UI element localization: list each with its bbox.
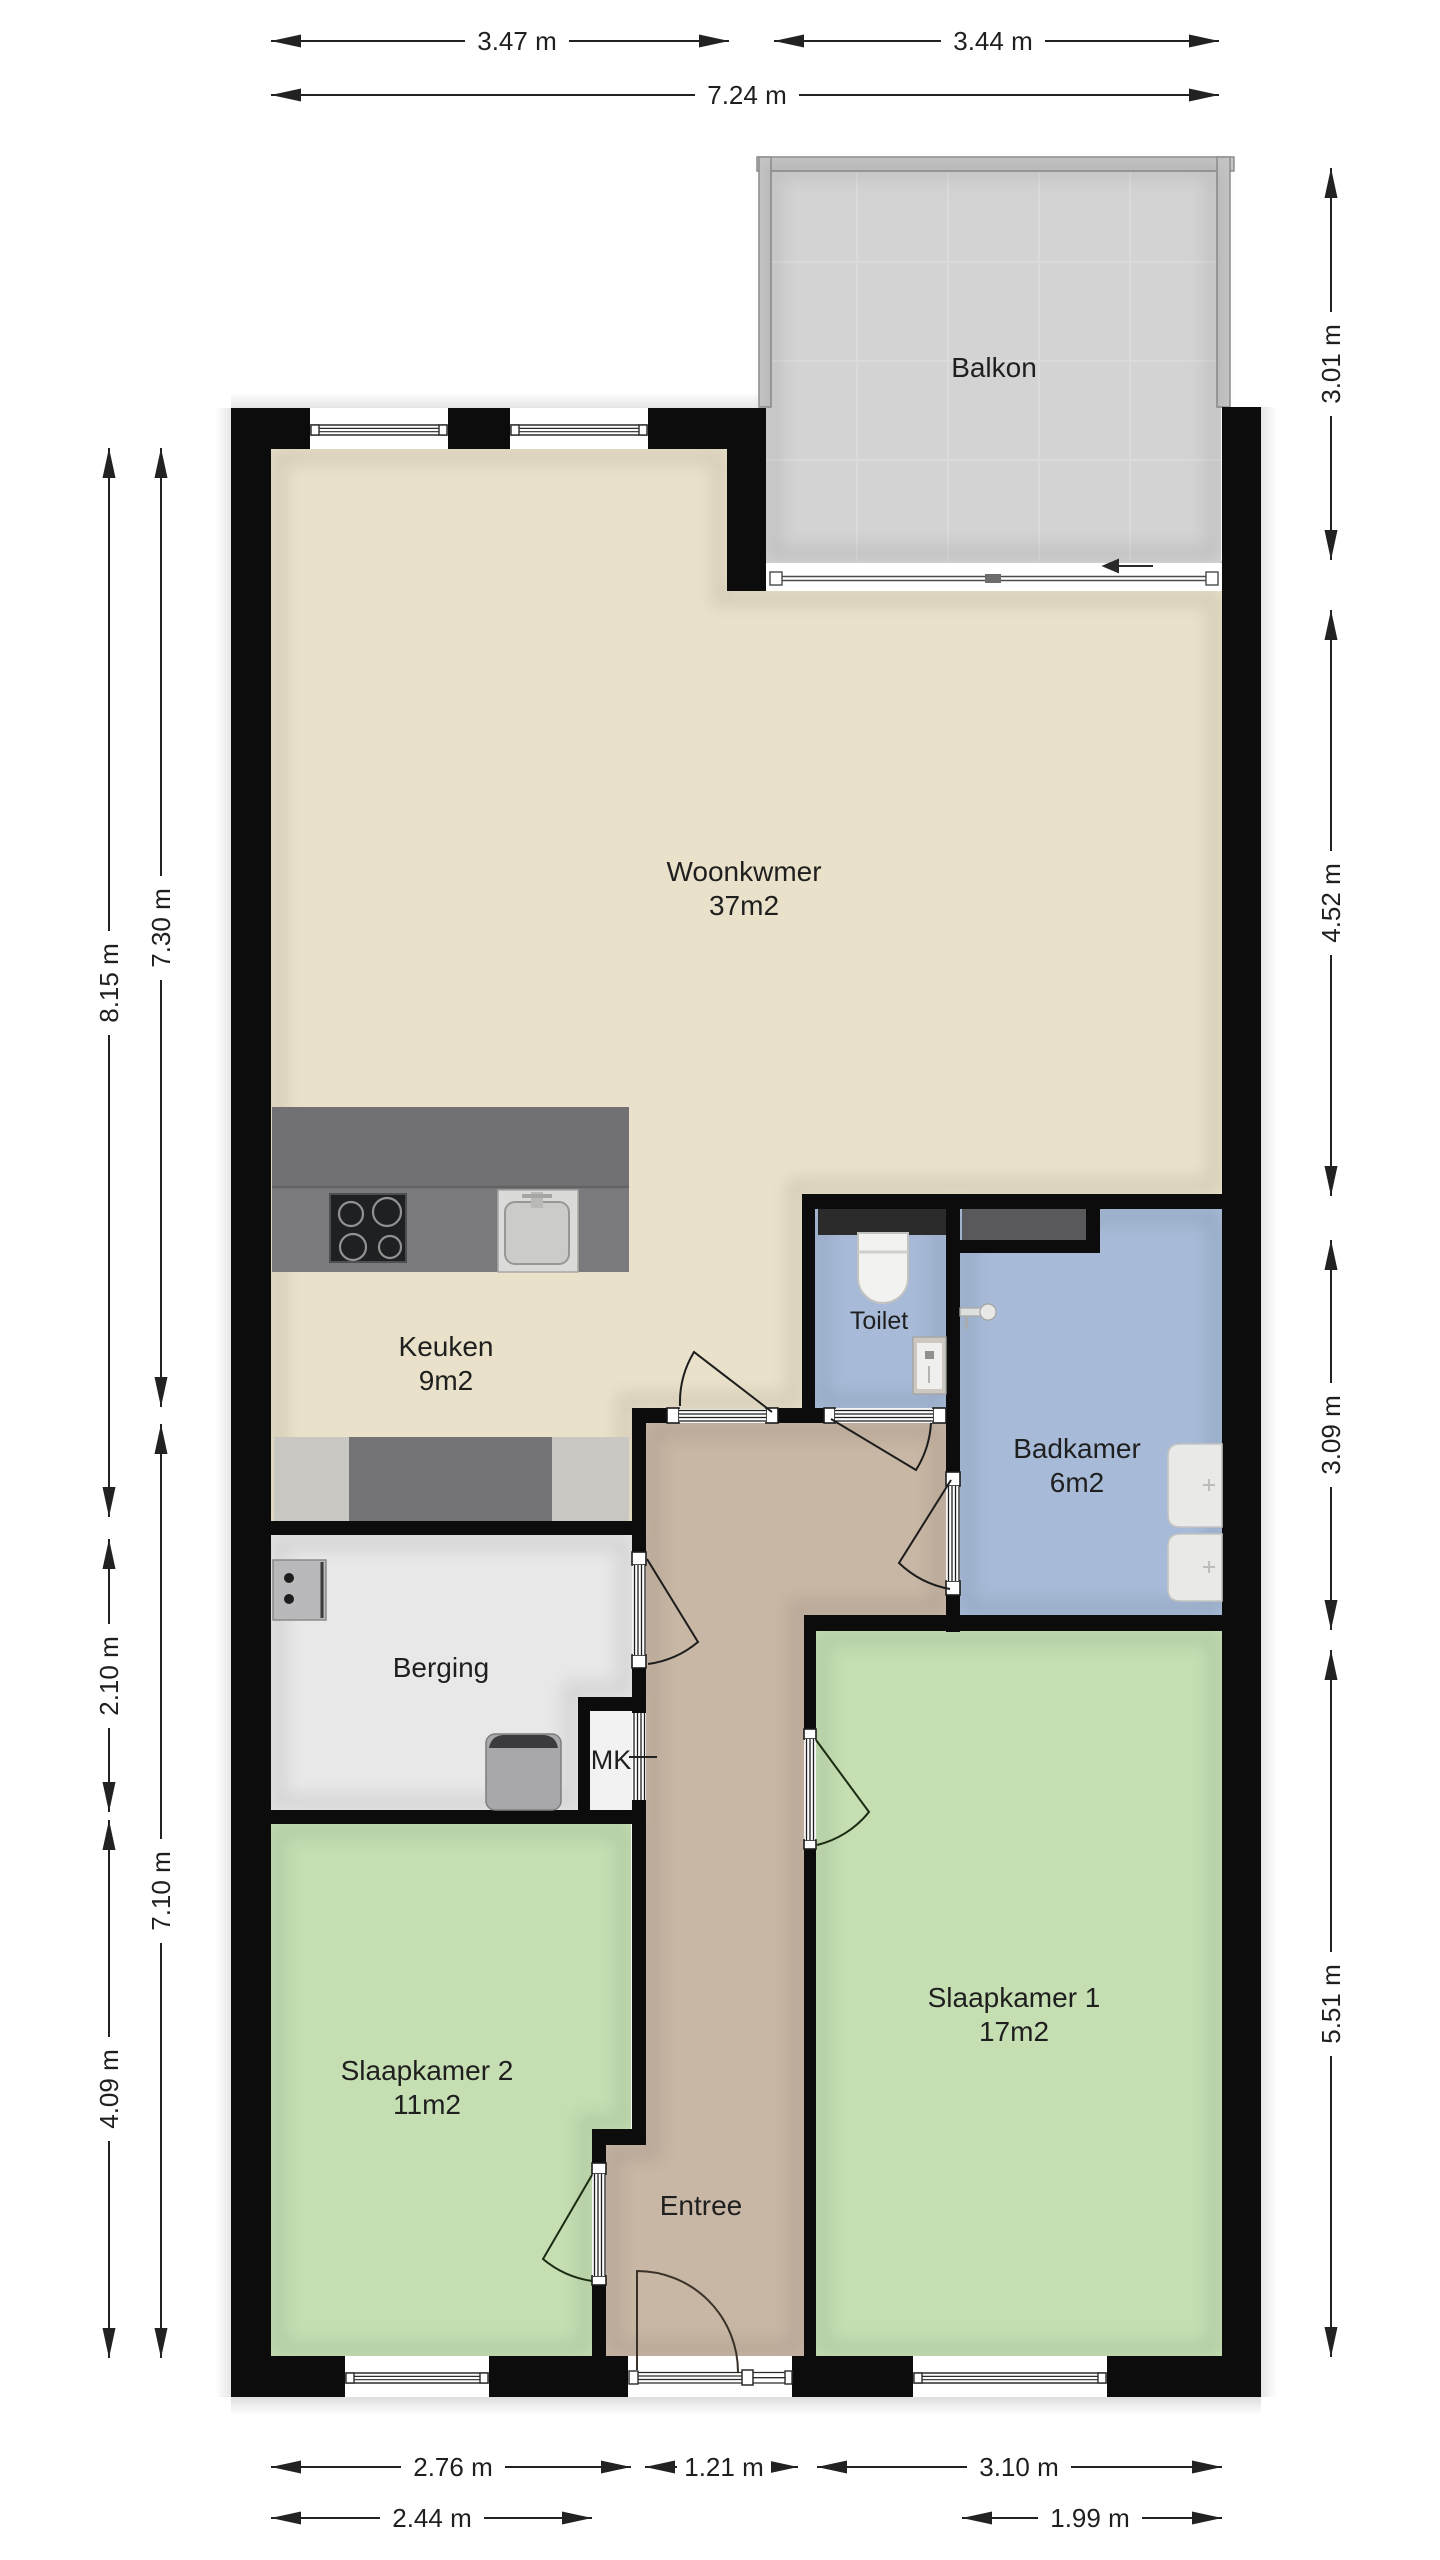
svg-text:8.15 m: 8.15 m — [94, 943, 124, 1023]
svg-text:9m2: 9m2 — [419, 1365, 473, 1396]
svg-text:3.09 m: 3.09 m — [1316, 1395, 1346, 1475]
svg-text:Balkon: Balkon — [951, 352, 1037, 383]
svg-text:1.21 m: 1.21 m — [684, 2452, 764, 2482]
svg-text:37m2: 37m2 — [709, 890, 779, 921]
svg-text:7.10 m: 7.10 m — [146, 1851, 176, 1931]
svg-text:Keuken: Keuken — [399, 1331, 494, 1362]
svg-text:3.10 m: 3.10 m — [979, 2452, 1059, 2482]
svg-text:7.30 m: 7.30 m — [146, 888, 176, 968]
svg-text:Badkamer: Badkamer — [1013, 1433, 1141, 1464]
svg-text:Slaapkamer 2: Slaapkamer 2 — [341, 2055, 514, 2086]
svg-text:1.99 m: 1.99 m — [1050, 2503, 1130, 2533]
svg-text:17m2: 17m2 — [979, 2016, 1049, 2047]
svg-text:2.44 m: 2.44 m — [392, 2503, 472, 2533]
svg-text:11m2: 11m2 — [393, 2089, 461, 2120]
svg-text:2.10 m: 2.10 m — [94, 1636, 124, 1716]
svg-text:3.44 m: 3.44 m — [953, 26, 1033, 56]
svg-text:Entree: Entree — [660, 2190, 743, 2221]
svg-text:4.52 m: 4.52 m — [1316, 863, 1346, 943]
svg-text:6m2: 6m2 — [1050, 1467, 1104, 1498]
svg-text:3.47 m: 3.47 m — [477, 26, 557, 56]
svg-text:Slaapkamer 1: Slaapkamer 1 — [928, 1982, 1101, 2013]
svg-text:Woonkwmer: Woonkwmer — [666, 856, 821, 887]
svg-text:7.24 m: 7.24 m — [707, 80, 787, 110]
svg-text:Toilet: Toilet — [850, 1307, 908, 1335]
svg-text:Berging: Berging — [393, 1652, 490, 1683]
svg-text:5.51 m: 5.51 m — [1316, 1964, 1346, 2044]
svg-text:3.01 m: 3.01 m — [1316, 324, 1346, 404]
svg-text:2.76 m: 2.76 m — [413, 2452, 493, 2482]
svg-text:4.09 m: 4.09 m — [94, 2049, 124, 2129]
svg-text:MK: MK — [591, 1745, 632, 1775]
